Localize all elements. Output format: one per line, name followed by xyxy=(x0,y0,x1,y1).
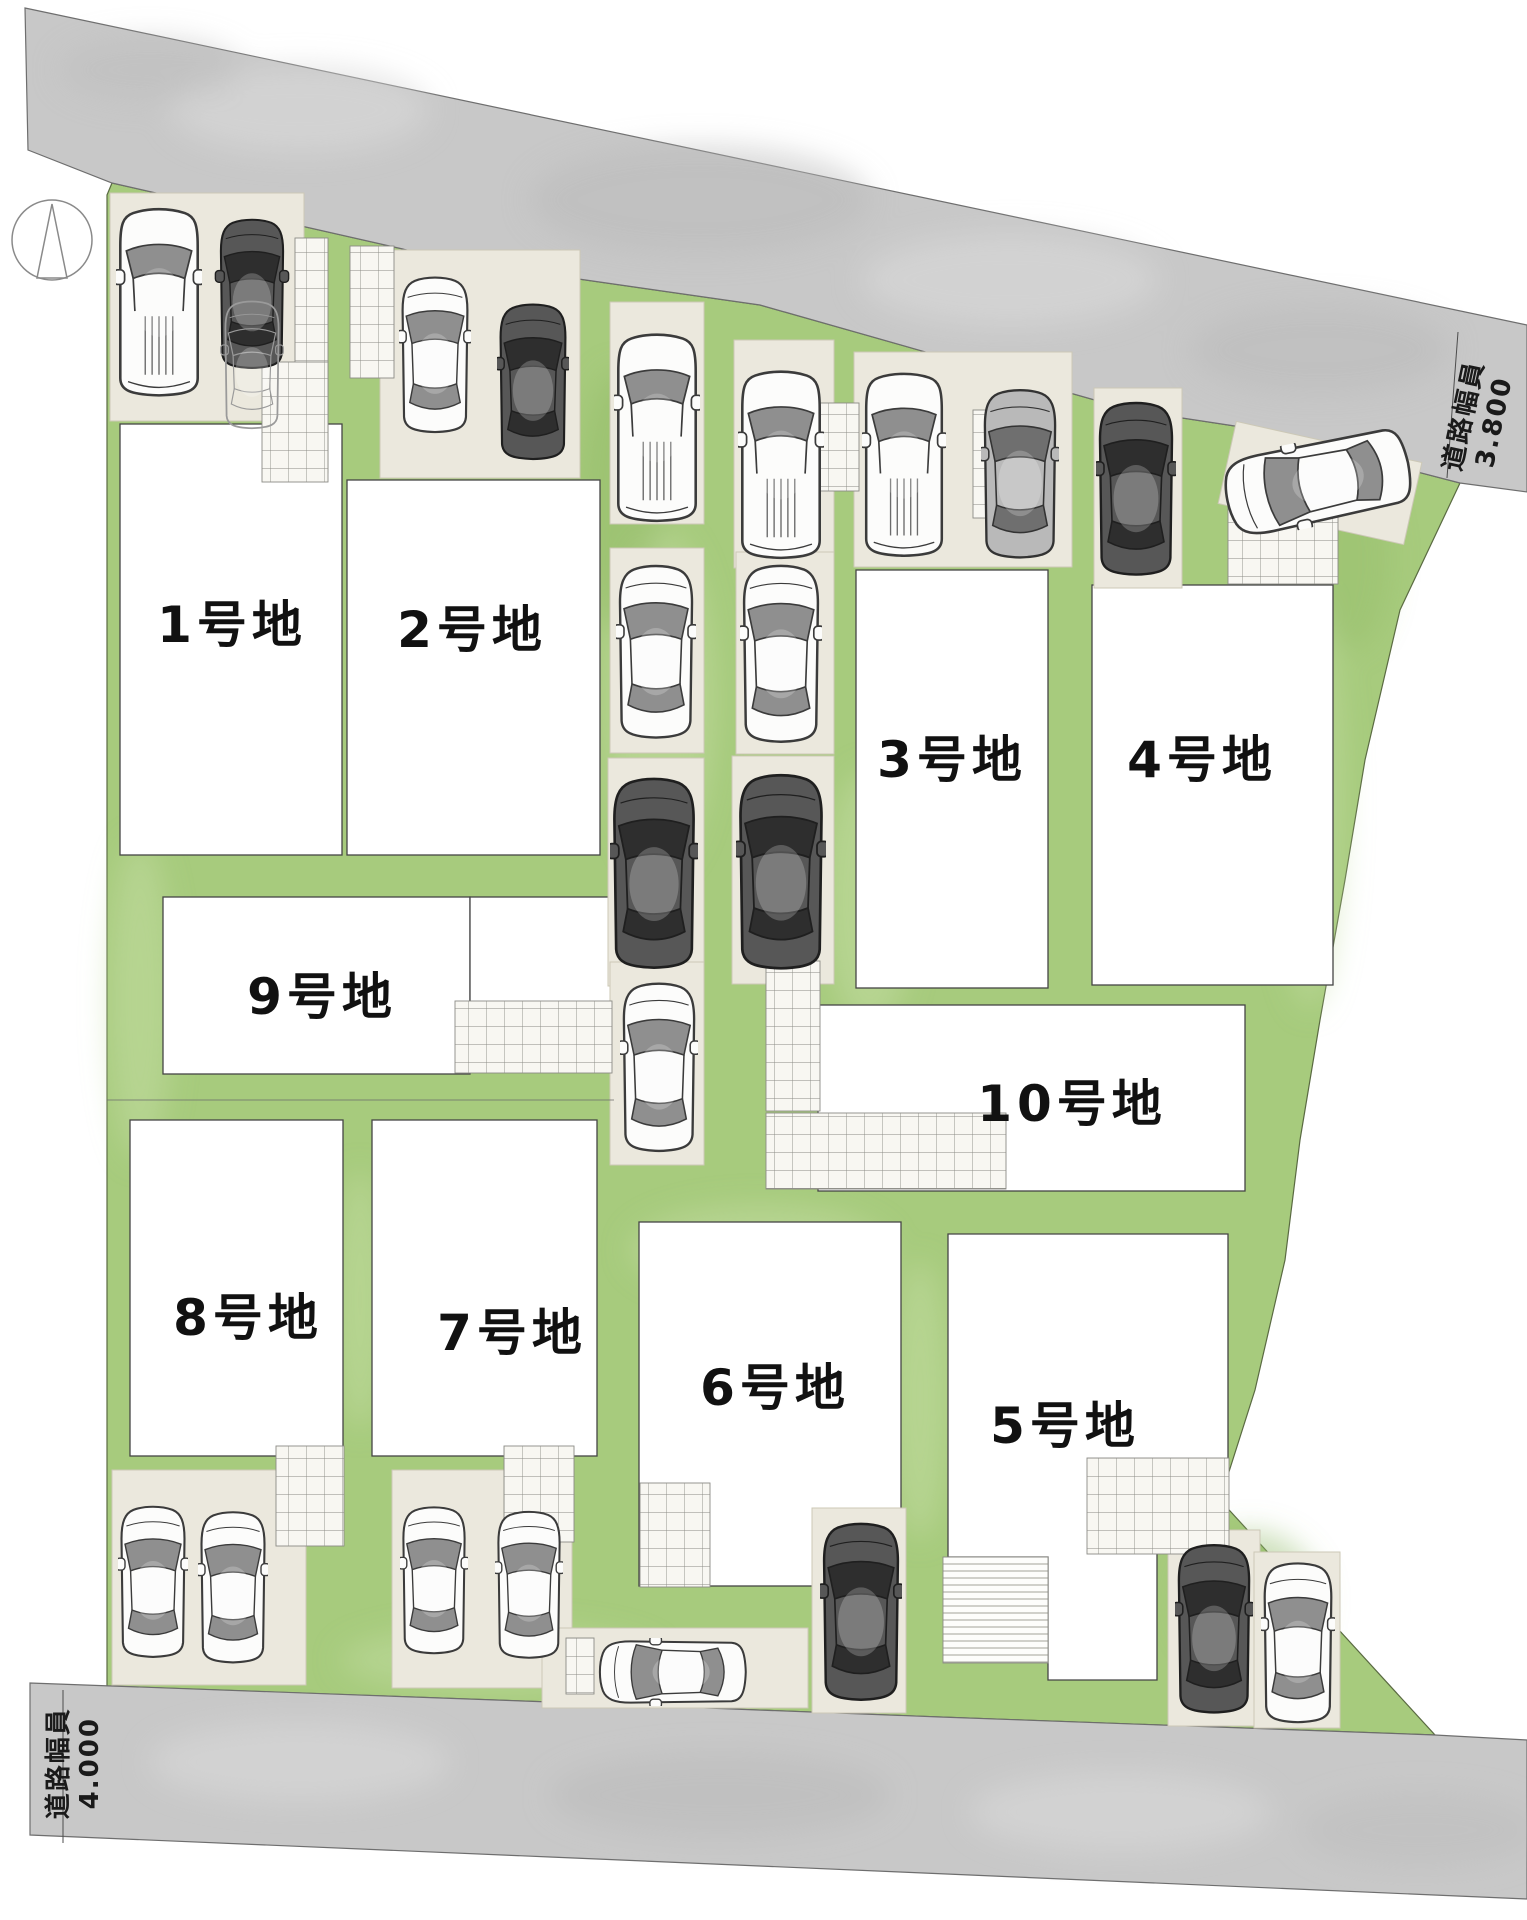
car xyxy=(116,1507,190,1657)
car xyxy=(607,779,700,968)
lot-4-label: 4号地 xyxy=(1127,735,1277,785)
lot-7-label: 7号地 xyxy=(437,1308,587,1358)
lot-2-area xyxy=(347,480,600,855)
car xyxy=(818,1524,905,1700)
bottom-road-width-label: 道路幅員 4.000 xyxy=(44,1703,106,1823)
car xyxy=(738,566,825,742)
car xyxy=(398,1507,470,1653)
lot-9-label: 9号地 xyxy=(247,972,397,1022)
car-outline xyxy=(221,301,284,428)
lot-10-label: 10号地 xyxy=(977,1079,1167,1129)
car xyxy=(196,1512,270,1662)
lot-5-label: 5号地 xyxy=(990,1401,1140,1451)
car xyxy=(397,278,473,432)
site-plan-drawing xyxy=(0,0,1527,1920)
lot-3-label: 3号地 xyxy=(877,735,1027,785)
lot-7-area xyxy=(372,1120,597,1456)
car xyxy=(735,372,826,558)
tile-grid xyxy=(350,246,394,378)
car xyxy=(495,305,571,459)
lot-6-label: 6号地 xyxy=(700,1363,850,1413)
car xyxy=(611,335,702,521)
north-compass-icon xyxy=(12,200,92,280)
car xyxy=(618,984,701,1151)
lot-8-label: 8号地 xyxy=(173,1293,323,1343)
road-width-value: 4.000 xyxy=(75,1703,106,1823)
tile-grid xyxy=(566,1638,594,1694)
car xyxy=(614,566,699,738)
lot-8-area xyxy=(130,1120,343,1456)
tile-grid xyxy=(455,1001,612,1073)
car xyxy=(600,1636,746,1708)
plan-canvas: 1号地 2号地 3号地 4号地 5号地 6号地 7号地 8号地 9号地 10号地… xyxy=(0,0,1527,1920)
tile-grid xyxy=(640,1483,710,1587)
tile-grid xyxy=(766,1113,1006,1189)
car xyxy=(733,775,828,968)
car xyxy=(493,1512,565,1658)
lot-9-approach-area xyxy=(470,897,612,1003)
car xyxy=(859,374,948,556)
road-width-caption: 道路幅員 xyxy=(44,1703,75,1823)
lot-1-label: 1号地 xyxy=(157,600,307,650)
tile-grid xyxy=(766,961,820,1111)
car xyxy=(1259,1563,1337,1722)
tile-grid xyxy=(1087,1458,1229,1554)
tile-grid xyxy=(276,1446,344,1546)
lot-2-label: 2号地 xyxy=(397,605,547,655)
striped-ground-patch xyxy=(943,1557,1048,1663)
car xyxy=(979,390,1062,557)
car xyxy=(1173,1545,1256,1712)
car xyxy=(113,209,204,395)
car xyxy=(1094,403,1179,575)
